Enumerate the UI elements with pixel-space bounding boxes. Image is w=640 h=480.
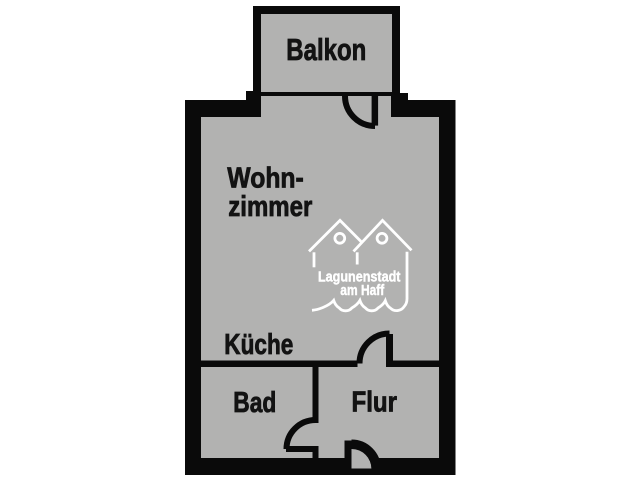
svg-text:Flur: Flur (352, 386, 398, 418)
svg-text:zimmer: zimmer (228, 191, 312, 223)
svg-text:Balkon: Balkon (286, 33, 366, 67)
svg-text:Wohn-: Wohn- (227, 163, 303, 195)
svg-text:Bad: Bad (233, 387, 276, 419)
svg-text:am Haff: am Haff (340, 282, 385, 299)
svg-text:Küche: Küche (224, 329, 293, 361)
